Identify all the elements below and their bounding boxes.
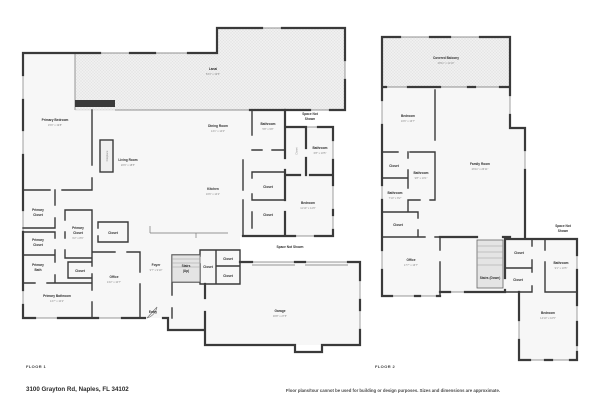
room-label-fireplace: Fireplace — [105, 150, 109, 161]
room-label-closet-e: Closet — [203, 265, 214, 269]
room-label-closet-c: Closet — [108, 231, 119, 235]
label-space-not-shown-top-2: Shown — [305, 117, 315, 121]
room-label-closet-k: Closet — [513, 278, 524, 282]
room-label-primary-bathroom: Primary Bathroom — [43, 294, 71, 298]
room-label-family-room: Family Room — [470, 162, 490, 166]
room-label-primary-closet1-2: Closet — [33, 213, 44, 217]
room-label-bedroom-f2b: Bedroom — [541, 311, 555, 315]
room-label-garage: Garage — [275, 309, 286, 313]
room-label-living-room: Living Room — [118, 158, 137, 162]
room-dims-office-f1: 13'2" x 10'7" — [107, 280, 121, 284]
room-label-stairs-up-1: Stairs — [182, 264, 191, 268]
label-space-not-shown-f2-2: Shown — [558, 229, 568, 233]
room-label-primary-bath-1: Primary — [32, 263, 44, 267]
room-label-primary-closet2-2: Closet — [33, 243, 44, 247]
room-label-dining-room: Dining Room — [208, 124, 228, 128]
room-dims-covered-balcony: 28'11" x 11'10" — [438, 61, 455, 65]
room-label-closet-d: Closet — [75, 269, 86, 273]
room-dims-garage: 30'8" x 27'5" — [273, 314, 287, 318]
room-label-closet-j: Closet — [514, 251, 525, 255]
label-space-not-shown-f2-1: Space Not — [555, 224, 572, 228]
room-label-primary-bedroom: Primary Bedroom — [42, 118, 69, 122]
room-label-closet-b: Closet — [263, 213, 274, 217]
room-label-bathroom2: Bathroom — [312, 146, 327, 150]
room-label-closet-hall: Closet — [295, 147, 299, 155]
room-dims-bathroom-f2c: 9'1" x 10'5" — [555, 266, 568, 270]
room-dims-bedroom-f2a: 16'6" x 16'7" — [401, 119, 415, 123]
lanai-header-wall — [75, 100, 115, 107]
room-label-closet-a: Closet — [263, 185, 274, 189]
room-label-foyer: Foyer — [152, 263, 161, 267]
room-label-stairs-up-2: (Up) — [183, 269, 189, 273]
room-dims-bedroom-f2b: 14'10" x 16'5" — [540, 316, 556, 320]
room-label-entry: Entry — [149, 310, 157, 314]
stairs-down-box — [477, 240, 503, 288]
room-dims-foyer: 9'7" x 9'10" — [150, 268, 163, 272]
address-text: 3100 Grayton Rd, Naples, FL 34102 — [26, 386, 129, 393]
room-label-office-f1: Office — [109, 275, 118, 279]
room-dims-office-f2: 17'7" x 16'7" — [404, 263, 418, 267]
room-label-primary-closet3-1: Primary — [72, 226, 84, 230]
room-label-primary-closet1-1: Primary — [32, 208, 44, 212]
room-label-bedroom-f1: Bedroom — [301, 201, 315, 205]
room-label-lanai: Lanai — [209, 67, 217, 71]
room-label-primary-closet3-2: Closet — [73, 231, 84, 235]
room-label-closet-i: Closet — [393, 223, 404, 227]
room-dims-dining-room: 14'1" x 14'0" — [211, 129, 225, 133]
room-label-covered-balcony: Covered Balcony — [433, 56, 459, 60]
room-dims-bedroom-f1: 11'10" x 14'6" — [300, 206, 316, 210]
room-dims-lanai: 53'3" x 19'5" — [206, 72, 220, 76]
label-space-not-shown-mid: Space Not Shown — [277, 245, 304, 249]
room-label-closet-h: Closet — [389, 164, 400, 168]
disclaimer-text: Floor plans/tour cannot be used for buil… — [286, 388, 500, 393]
room-label-bathroom-f2c: Bathroom — [553, 261, 568, 265]
floor2-plan: Covered Balcony 28'11" x 11'10" Bedroom … — [375, 37, 577, 369]
room-dims-primary-bedroom: 15'0" x 19'8" — [48, 123, 62, 127]
room-dims-bathroom2: 6'8" x 10'5" — [314, 151, 327, 155]
room-label-kitchen: Kitchen — [207, 187, 219, 191]
floor-plan-image: Lanai 53'3" x 19'5" Primary Bedroom 15'0… — [0, 0, 600, 400]
floor-plan-page: Lanai 53'3" x 19'5" Primary Bedroom 15'0… — [0, 0, 600, 400]
room-dims-primary-bathroom: 14'7" x 10'2" — [50, 299, 64, 303]
room-dims-bathroom-f2a: 9'8" x 10'1" — [415, 176, 428, 180]
room-label-bathroom-f2b: Bathroom — [387, 191, 402, 195]
room-label-primary-bath-2: Bath — [34, 268, 41, 272]
room-label-closet-f: Closet — [223, 257, 234, 261]
room-dims-primary-closet3: 6'2" x 8'9" — [72, 236, 83, 240]
room-dims-bathroom1: 5'8" x 9'8" — [262, 127, 273, 131]
room-dims-family-room: 26'11" x 26'11" — [472, 167, 489, 171]
room-dims-living-room: 20'9" x 18'5" — [121, 163, 135, 167]
floor1-label: FLOOR 1 — [26, 364, 47, 369]
room-label-office-f2: Office — [406, 258, 415, 262]
room-label-primary-closet2-1: Primary — [32, 238, 44, 242]
room-label-bedroom-f2a: Bedroom — [401, 114, 415, 118]
room-dims-bathroom-f2b: 7'10" x 8'2" — [389, 196, 402, 200]
footer: 3100 Grayton Rd, Naples, FL 34102 Floor … — [26, 386, 500, 393]
room-dims-kitchen: 16'6" x 14'2" — [206, 192, 220, 196]
room-label-bathroom1: Bathroom — [260, 122, 275, 126]
floor2-label: FLOOR 2 — [375, 364, 396, 369]
label-space-not-shown-top-1: Space Not — [302, 112, 319, 116]
floor1-plan: Lanai 53'3" x 19'5" Primary Bedroom 15'0… — [23, 28, 360, 369]
room-label-stairs-down: Stairs (Down) — [480, 276, 501, 280]
room-label-closet-g: Closet — [223, 274, 234, 278]
room-label-bathroom-f2a: Bathroom — [413, 171, 428, 175]
